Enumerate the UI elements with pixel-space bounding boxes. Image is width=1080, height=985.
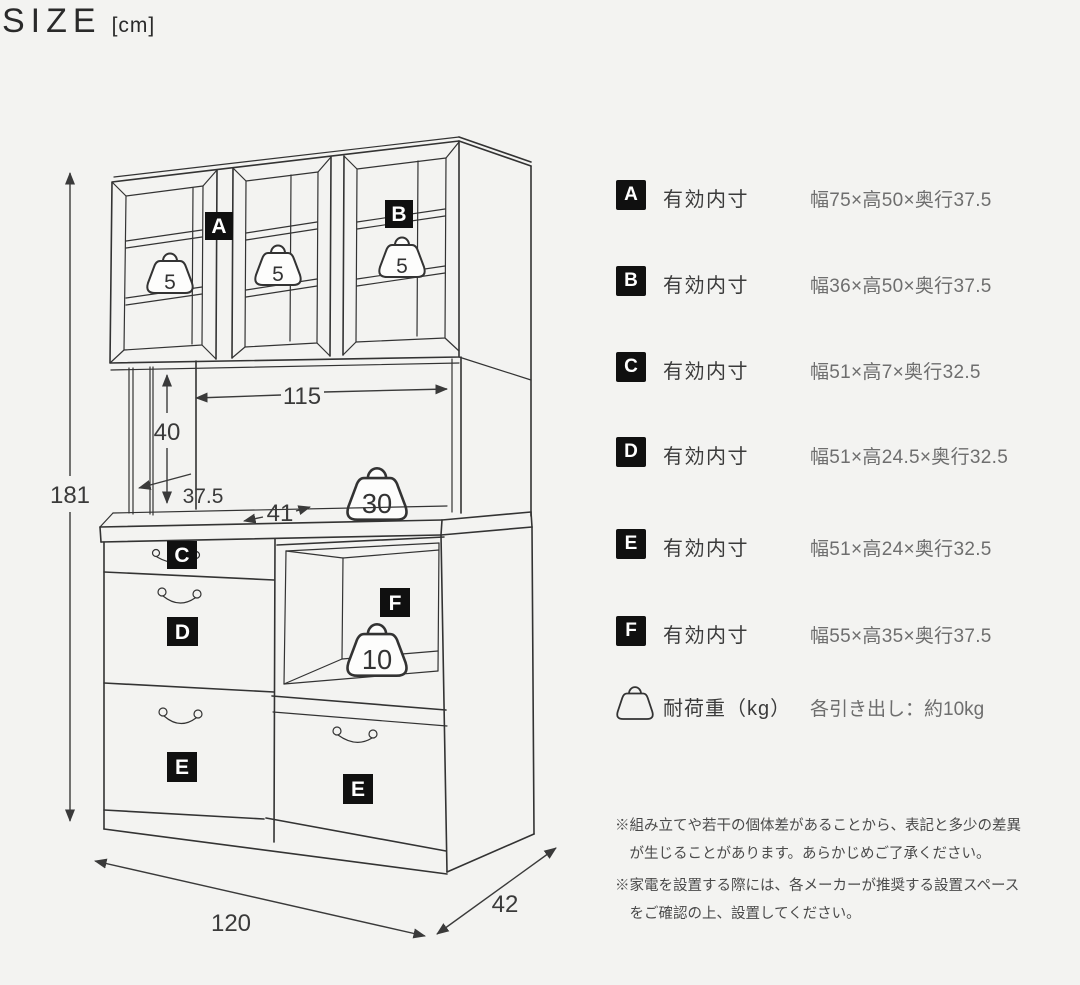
- legend-row-c: C 有効内寸 幅51×高7×奥行32.5: [616, 352, 1076, 386]
- weight-value-shelf3: 5: [396, 255, 408, 278]
- section-letter-e-left: E: [175, 756, 189, 779]
- legend-badge-f: F: [616, 616, 646, 646]
- legend-value-c: 幅51×高7×奥行32.5: [810, 357, 981, 384]
- legend-row-b: B 有効内寸 幅36×高50×奥行37.5: [616, 266, 1076, 300]
- base-cabinet: 10 C D F E E: [104, 527, 534, 874]
- legend-value-e: 幅51×高24×奥行32.5: [810, 534, 992, 561]
- dim-value-depth: 42: [492, 891, 519, 918]
- section-label-e-right: E: [343, 774, 373, 804]
- legend-row-f: F 有効内寸 幅55×高35×奥行37.5: [616, 616, 1076, 650]
- dimension-inner-width-115: 115: [196, 383, 447, 410]
- drawer-handle-e-right: [333, 727, 377, 742]
- cabinet-line-drawing: 5 5 5 A B: [0, 0, 600, 985]
- size-spec-sheet: SIZE[cm]: [0, 0, 1080, 985]
- weight-bag-counter: 30: [348, 468, 407, 519]
- dim-value-open-height: 40: [154, 419, 181, 446]
- section-letter-f: F: [389, 592, 402, 615]
- drawer-handle-d: [158, 588, 201, 603]
- section-label-c: C: [167, 541, 197, 569]
- section-letter-a: A: [211, 215, 226, 238]
- section-letter-e-right: E: [351, 778, 365, 801]
- dim-value-counter-depth: 41: [267, 500, 294, 527]
- drawer-handle-e-left: [159, 708, 202, 724]
- dimension-open-height-40: 40: [154, 375, 181, 503]
- dim-value-shelf-depth: 37.5: [183, 485, 224, 508]
- section-letter-b: B: [391, 203, 406, 226]
- dim-value-height: 181: [50, 482, 90, 509]
- legend-row-load-capacity: 耐荷重（kg） 各引き出し：約10kg: [616, 683, 1076, 717]
- legend-label-d: 有効内寸: [663, 440, 749, 469]
- dimension-width-120: 120: [95, 861, 425, 937]
- legend-badge-a: A: [616, 180, 646, 210]
- section-label-e-left: E: [167, 752, 197, 782]
- legend-label-c: 有効内寸: [663, 355, 749, 384]
- dimension-depth-42: 42: [437, 848, 556, 934]
- section-label-f: F: [380, 588, 410, 617]
- dim-value-inner-width: 115: [283, 383, 321, 410]
- dimension-height-181: 181: [50, 173, 90, 821]
- footnote-1: ※組み立てや若干の個体差があることから、表記と多少の差異が生じることがあります。…: [615, 812, 1029, 869]
- section-label-a: A: [205, 212, 233, 240]
- weight-bag-niche: 10: [348, 624, 407, 675]
- legend-value-b: 幅36×高50×奥行37.5: [810, 271, 992, 298]
- legend-label-b: 有効内寸: [663, 269, 749, 298]
- legend-value-d: 幅51×高24.5×奥行32.5: [810, 442, 1008, 469]
- legend-label-f: 有効内寸: [663, 619, 749, 648]
- legend-label-a: 有効内寸: [663, 183, 749, 212]
- dim-value-width: 120: [211, 910, 251, 937]
- legend-value-a: 幅75×高50×奥行37.5: [810, 185, 992, 212]
- footnote-2: ※家電を設置する際には、各メーカーが推奨する設置スペースをご確認の上、設置してく…: [615, 872, 1029, 929]
- weight-value-counter: 30: [362, 488, 392, 519]
- legend-row-e: E 有効内寸 幅51×高24×奥行32.5: [616, 529, 1076, 563]
- section-letter-d: D: [175, 621, 190, 644]
- weight-value-niche: 10: [362, 644, 392, 675]
- weight-bag-icon: [614, 683, 656, 725]
- legend-badge-e: E: [616, 529, 646, 559]
- load-capacity-label: 耐荷重（kg）: [663, 692, 791, 721]
- weight-value-shelf2: 5: [272, 263, 284, 286]
- weight-value-shelf1: 5: [164, 271, 176, 294]
- legend-badge-c: C: [616, 352, 646, 382]
- counter-top: [100, 506, 532, 542]
- load-capacity-value: 各引き出し：約10kg: [810, 694, 984, 721]
- legend-badge-d: D: [616, 437, 646, 467]
- section-letter-c: C: [174, 544, 189, 567]
- section-label-d: D: [167, 617, 198, 646]
- legend-badge-b: B: [616, 266, 646, 296]
- footnotes: ※組み立てや若干の個体差があることから、表記と多少の差異が生じることがあります。…: [615, 812, 1029, 931]
- legend-value-f: 幅55×高35×奥行37.5: [810, 621, 992, 648]
- hutch-upper-cabinet: 5 5 5 A B: [110, 137, 531, 516]
- weight-bag-shelf2: 5: [255, 246, 300, 287]
- dimension-shelf-depth-37-5: 37.5: [139, 474, 223, 508]
- weight-bag-shelf1: 5: [147, 254, 192, 295]
- legend-label-e: 有効内寸: [663, 532, 749, 561]
- legend-row-a: A 有効内寸 幅75×高50×奥行37.5: [616, 180, 1076, 214]
- section-label-b: B: [385, 200, 413, 228]
- legend-row-d: D 有効内寸 幅51×高24.5×奥行32.5: [616, 437, 1076, 471]
